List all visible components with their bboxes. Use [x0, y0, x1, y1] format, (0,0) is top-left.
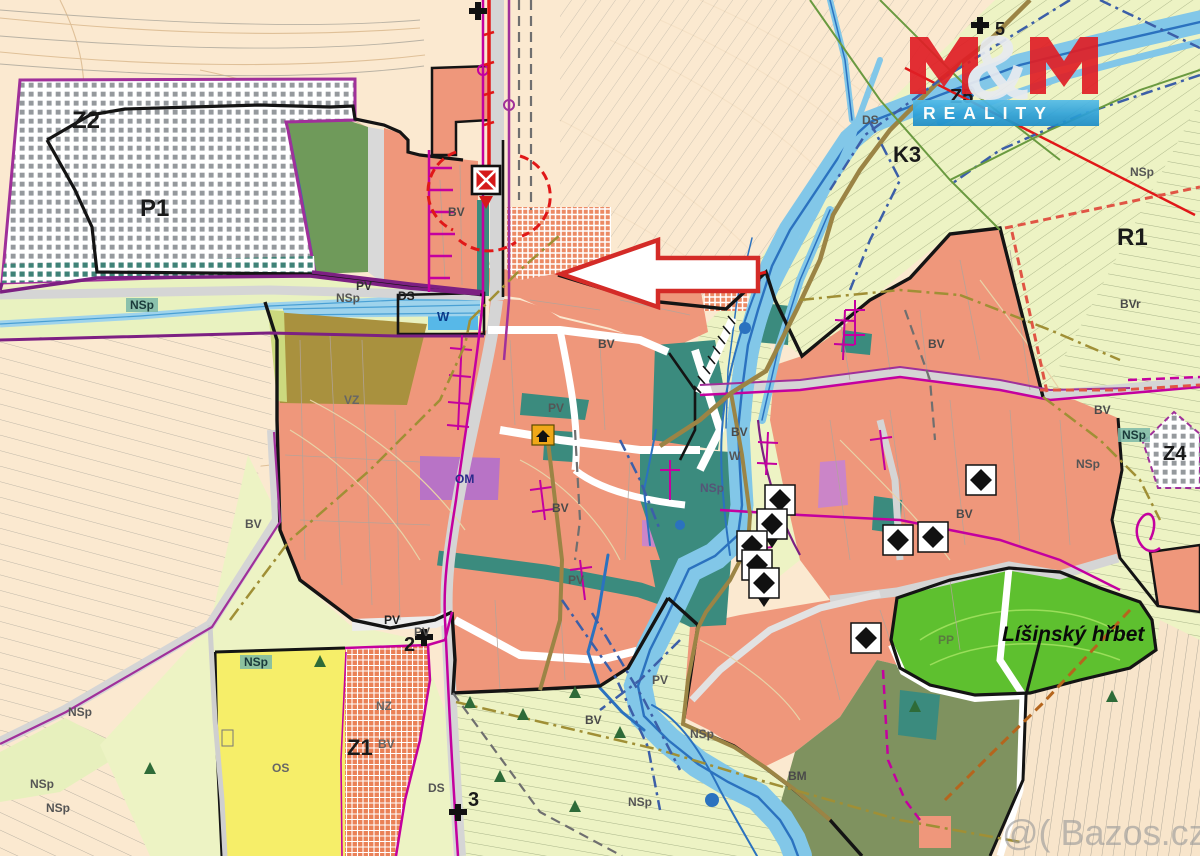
svg-text:NSp: NSp: [700, 481, 724, 495]
svg-text:BV: BV: [585, 713, 602, 727]
svg-text:NSp: NSp: [244, 655, 268, 669]
svg-text:Z1: Z1: [347, 735, 373, 760]
svg-text:DS: DS: [398, 289, 415, 303]
svg-text:PV: PV: [568, 573, 584, 587]
svg-text:PV: PV: [414, 625, 430, 639]
svg-text:Z2: Z2: [72, 107, 100, 134]
svg-text:OS: OS: [272, 761, 289, 775]
svg-text:NSp: NSp: [336, 291, 360, 305]
svg-text:NSp: NSp: [1122, 428, 1146, 442]
svg-text:BV: BV: [1094, 403, 1111, 417]
svg-text:NSp: NSp: [130, 298, 154, 312]
svg-text:NSp: NSp: [690, 727, 714, 741]
svg-text:PV: PV: [384, 613, 400, 627]
svg-text:BV: BV: [245, 517, 262, 531]
svg-text:BV: BV: [448, 205, 465, 219]
svg-text:3: 3: [468, 789, 479, 811]
svg-text:W: W: [437, 309, 450, 324]
svg-text:DS: DS: [428, 781, 445, 795]
svg-text:R1: R1: [1117, 224, 1148, 251]
svg-text:NSp: NSp: [30, 777, 54, 791]
svg-text:@( Bazos.cz: @( Bazos.cz: [1002, 812, 1200, 853]
svg-text:BV: BV: [928, 337, 945, 351]
svg-text:K3: K3: [893, 142, 921, 167]
svg-text:W: W: [729, 449, 741, 463]
svg-text:BV: BV: [731, 425, 748, 439]
svg-text:NSp: NSp: [1076, 457, 1100, 471]
svg-text:Líšinský hřbet: Líšinský hřbet: [1002, 623, 1145, 646]
svg-text:PV: PV: [652, 673, 668, 687]
svg-text:BV: BV: [552, 501, 569, 515]
svg-text:BV: BV: [598, 337, 615, 351]
svg-text:OM: OM: [455, 472, 474, 486]
svg-text:Z4: Z4: [1163, 443, 1187, 465]
svg-text:DS: DS: [862, 113, 879, 127]
svg-text:PV: PV: [548, 401, 564, 415]
svg-text:BV: BV: [956, 507, 973, 521]
svg-text:BVr: BVr: [1120, 297, 1141, 311]
svg-text:BM: BM: [788, 769, 807, 783]
svg-text:P1: P1: [140, 195, 169, 222]
svg-text:BV: BV: [378, 737, 395, 751]
svg-text:NSp: NSp: [46, 801, 70, 815]
svg-text:NSp: NSp: [68, 705, 92, 719]
svg-text:REALITY: REALITY: [923, 103, 1054, 123]
svg-text:NSp: NSp: [628, 795, 652, 809]
svg-text:NSp: NSp: [1130, 165, 1154, 179]
svg-text:NZ: NZ: [376, 699, 392, 713]
svg-text:PP: PP: [938, 633, 954, 647]
svg-text:VZ: VZ: [344, 393, 359, 407]
